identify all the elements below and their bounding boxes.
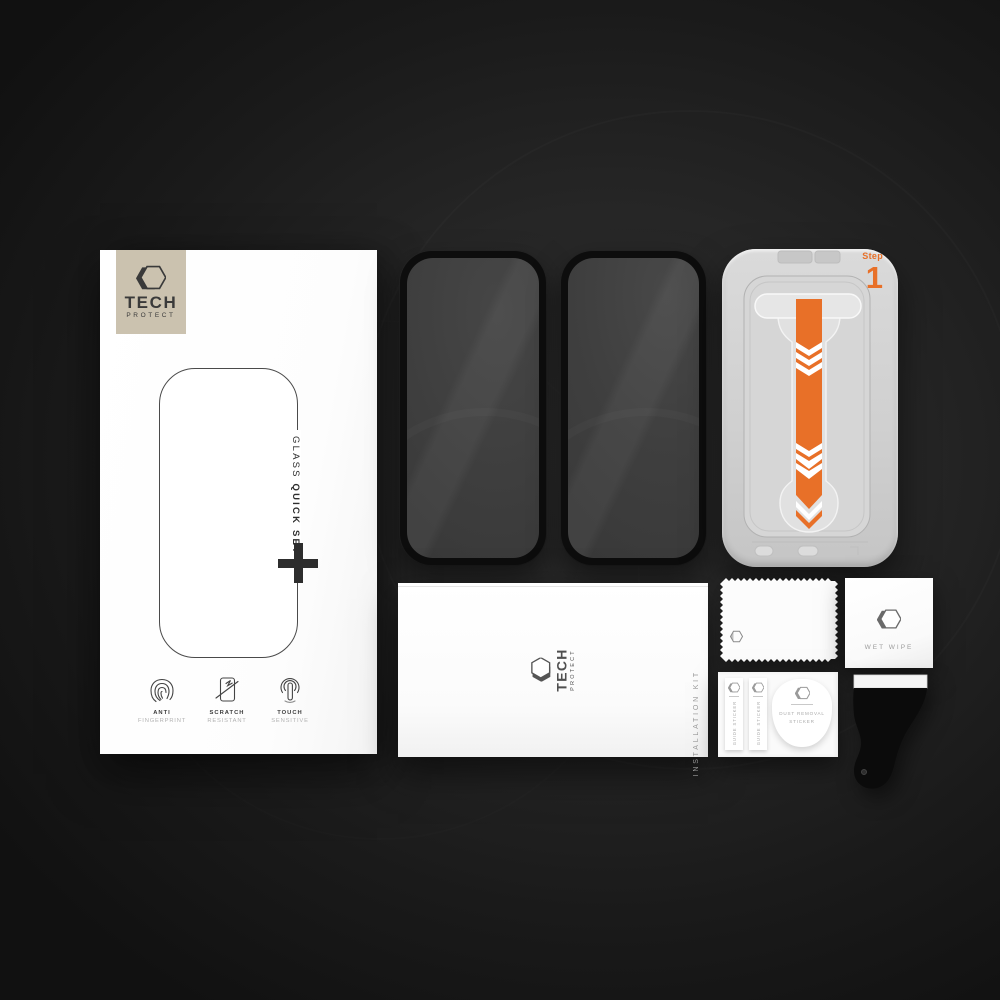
squeegee-tool	[845, 668, 929, 797]
hexagon-3d-icon	[877, 608, 901, 630]
wet-wipe-packet: WET WIPE	[845, 578, 933, 668]
installation-kit-box: TECH PROTECT INSTALLATION KIT	[398, 583, 708, 757]
step-badge: Step 1	[862, 252, 883, 293]
glass-protector-1	[400, 251, 546, 565]
brand-logo-plate: TECH PROTECT	[116, 250, 186, 334]
feature-item-touch-sensitive: TOUCH SENSITIVE	[253, 674, 327, 724]
feature-subtitle: FINGERPRINT	[125, 718, 199, 724]
hexagon-3d-icon	[136, 264, 166, 291]
guide-sticker-label: GUIDE STICKER	[756, 701, 761, 745]
hexagon-icon	[795, 686, 810, 700]
feature-item-anti-fingerprint: ANTI FINGERPRINT	[125, 674, 199, 724]
dust-removal-label-line2: STICKER	[779, 718, 824, 726]
phone-outline	[159, 368, 298, 658]
installation-kit-label: INSTALLATION KIT	[693, 670, 700, 776]
hexagon-icon	[752, 682, 764, 693]
glass-protector-2	[561, 251, 706, 565]
zigzag-cloth-shape	[720, 578, 838, 662]
feature-icons-row: ANTI FINGERPRINT SCRATCH RESISTANT	[100, 674, 377, 734]
brand-subname: PROTECT	[126, 313, 175, 320]
touch-finger-icon	[275, 674, 305, 706]
glass-surface	[568, 258, 699, 558]
kit-brand-logo: TECH PROTECT	[530, 648, 577, 691]
scratch-screen-icon	[212, 674, 242, 706]
brand-name: TECH	[555, 648, 568, 691]
glass-label: GLASS	[290, 436, 301, 479]
feature-subtitle: SENSITIVE	[253, 718, 327, 724]
sticker-card: GUIDE STICKER GUIDE STICKER DUST REMOVAL…	[718, 672, 838, 757]
glass-surface	[407, 258, 539, 558]
squeegee-shape	[845, 668, 929, 792]
brand-name: TECH	[125, 295, 178, 311]
squeegee-hole	[861, 769, 866, 774]
wet-wipe-label: WET WIPE	[865, 644, 914, 651]
divider	[791, 704, 813, 705]
plus-crosshair-icon	[278, 543, 318, 583]
tray-detail-graphic	[722, 249, 898, 567]
divider	[753, 696, 763, 697]
guide-sticker-2: GUIDE STICKER	[749, 678, 767, 750]
squeegee-felt	[854, 675, 927, 688]
product-photo-scene: TECH PROTECT GLASS QUICK SET	[0, 0, 1000, 1000]
guide-sticker-1: GUIDE STICKER	[725, 678, 743, 750]
retail-box: TECH PROTECT GLASS QUICK SET	[100, 250, 377, 754]
dust-removal-label-line1: DUST REMOVAL	[779, 710, 824, 718]
feature-title: ANTI	[125, 710, 199, 716]
glass-quickset-label: GLASS QUICK SET	[290, 436, 301, 546]
hexagon-icon	[728, 682, 740, 693]
brand-subname: PROTECT	[571, 649, 577, 691]
brand-logo: TECH PROTECT	[125, 264, 178, 320]
step-number: 1	[862, 262, 883, 293]
fingerprint-icon	[147, 674, 177, 706]
guide-sticker-label: GUIDE STICKER	[732, 701, 737, 745]
hexagon-3d-icon	[530, 658, 552, 682]
divider	[729, 696, 739, 697]
dust-removal-sticker: DUST REMOVAL STICKER	[772, 679, 832, 747]
feature-title: TOUCH	[253, 710, 327, 716]
pull-down-arrow-icon	[796, 299, 822, 529]
microfiber-cloth	[720, 578, 838, 667]
install-tray: Step 1	[722, 249, 898, 567]
